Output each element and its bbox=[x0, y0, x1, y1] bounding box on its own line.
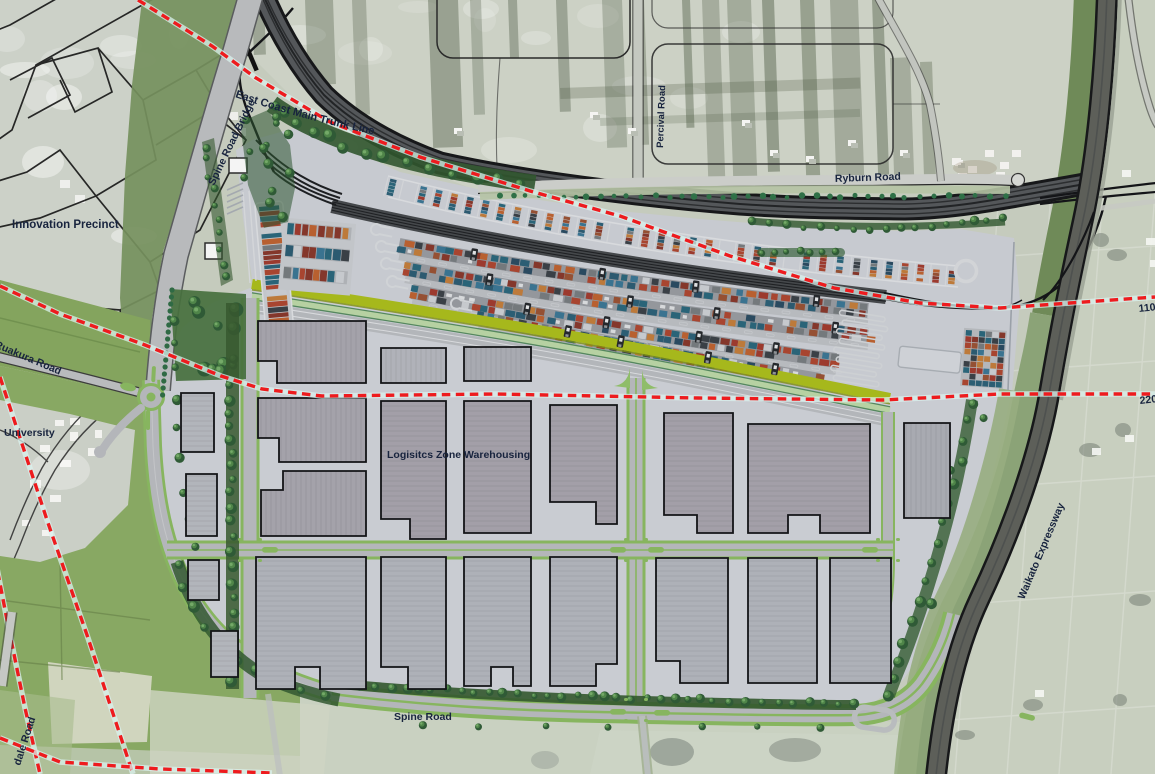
svg-text:110: 110 bbox=[1138, 301, 1155, 315]
svg-text:Innovation Precinct: Innovation Precinct bbox=[12, 219, 119, 231]
svg-text:Percival Road: Percival Road bbox=[655, 85, 668, 148]
svg-text:220: 220 bbox=[1139, 393, 1155, 407]
svg-text:Logisitcs Zone Warehousing: Logisitcs Zone Warehousing bbox=[387, 449, 530, 461]
svg-text:Ryburn Road: Ryburn Road bbox=[835, 171, 901, 185]
svg-text:Spine Road: Spine Road bbox=[394, 711, 452, 723]
svg-text:University: University bbox=[4, 427, 55, 439]
